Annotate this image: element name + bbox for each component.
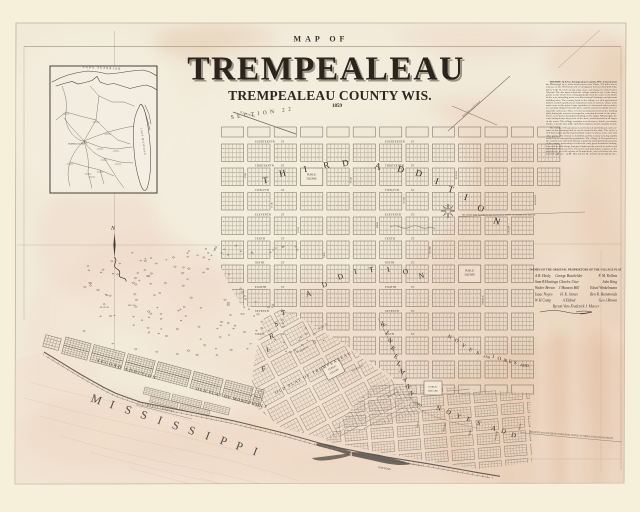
- svg-text:H. K. James: H. K. James: [559, 292, 578, 296]
- svg-text:SQUARE: SQUARE: [428, 390, 438, 393]
- svg-text:ROAD TO THE WARRENS MONTOVILLE: ROAD TO THE WARRENS MONTOVILLE POINT AT …: [462, 214, 536, 217]
- svg-text:ST: ST: [411, 238, 414, 241]
- svg-text:ST: ST: [281, 214, 284, 217]
- svg-text:EIGHTH: EIGHTH: [255, 286, 266, 289]
- svg-text:PINE: PINE: [244, 172, 247, 178]
- svg-text:TWELFTH: TWELFTH: [385, 189, 399, 192]
- svg-text:ST: ST: [281, 141, 284, 144]
- svg-text:LOCUST: LOCUST: [508, 225, 511, 235]
- svg-text:ST: ST: [411, 262, 414, 265]
- svg-text:TREMPEALEAU: TREMPEALEAU: [187, 51, 465, 88]
- svg-text:EIGHTH: EIGHTH: [385, 286, 396, 289]
- svg-text:Ben R. Hammonds: Ben R. Hammonds: [590, 292, 617, 296]
- svg-text:ST: ST: [411, 286, 414, 289]
- svg-text:SEC 30: SEC 30: [128, 304, 136, 307]
- svg-text:TENTH: TENTH: [255, 238, 265, 241]
- svg-text:Isaac Noyes: Isaac Noyes: [534, 292, 553, 296]
- svg-text:SQUARE: SQUARE: [306, 178, 317, 181]
- svg-text:OAK: OAK: [271, 202, 274, 207]
- svg-text:STATE: STATE: [402, 196, 405, 204]
- svg-text:Charles Utter: Charles Utter: [559, 280, 579, 284]
- svg-text:NINTH: NINTH: [255, 262, 265, 265]
- svg-text:ST: ST: [281, 238, 284, 241]
- svg-text:Edwd Winkelmann: Edwd Winkelmann: [589, 286, 617, 290]
- svg-text:SEVENTH: SEVENTH: [255, 310, 269, 313]
- svg-text:shops, a steam saw mill, and o: shops, a steam saw mill, and other impro…: [546, 122, 617, 125]
- svg-text:PLAT 30: PLAT 30: [100, 306, 109, 309]
- svg-text:F. M. Rollins: F. M. Rollins: [597, 274, 617, 278]
- svg-text:FOURTEENTH: FOURTEENTH: [385, 141, 405, 144]
- svg-text:THIRTEENTH: THIRTEENTH: [255, 165, 274, 168]
- svg-text:A Eldred: A Eldred: [562, 298, 576, 302]
- svg-text:PUBLIC: PUBLIC: [465, 270, 474, 273]
- svg-text:TREMPEALEAU: TREMPEALEAU: [68, 143, 84, 146]
- svg-text:ELM: ELM: [297, 227, 300, 233]
- svg-text:WALNUT: WALNUT: [534, 194, 537, 205]
- svg-text:ST: ST: [281, 286, 284, 289]
- svg-text:ST: ST: [281, 189, 284, 192]
- svg-text:NINTH: NINTH: [385, 262, 395, 265]
- svg-text:ELEVENTH: ELEVENTH: [385, 214, 401, 217]
- svg-text:PUBLIC: PUBLIC: [307, 174, 316, 177]
- svg-text:FOURTEENTH: FOURTEENTH: [255, 141, 275, 144]
- svg-text:ST: ST: [411, 333, 414, 336]
- svg-text:HIGH: HIGH: [376, 222, 379, 228]
- svg-text:TENTH: TENTH: [385, 238, 395, 241]
- svg-text:1859: 1859: [332, 104, 343, 109]
- svg-text:TWELFTH: TWELFTH: [255, 189, 269, 192]
- svg-text:George Batchelder: George Batchelder: [555, 274, 583, 278]
- svg-text:ST: ST: [411, 141, 414, 144]
- svg-text:SEVENTH: SEVENTH: [385, 310, 399, 313]
- svg-text:ST: ST: [411, 214, 414, 217]
- svg-text:WATER: WATER: [429, 246, 432, 254]
- svg-text:ST: ST: [411, 165, 414, 168]
- svg-text:J Munson Hill: J Munson Hill: [559, 286, 580, 290]
- svg-text:ST: ST: [411, 189, 414, 192]
- svg-text:Sam B Hastings: Sam B Hastings: [535, 280, 559, 284]
- svg-text:SPRUCE: SPRUCE: [481, 295, 484, 305]
- svg-text:TREMPEALEAU COUNTY WIS.: TREMPEALEAU COUNTY WIS.: [228, 88, 432, 103]
- svg-text:PUBLIC: PUBLIC: [429, 386, 438, 389]
- svg-text:Walter Brown: Walter Brown: [535, 286, 555, 290]
- svg-text:Byram Vars Frederick J. Merc: Byram Vars Frederick J. Mercer: [553, 305, 600, 309]
- svg-text:CEDAR: CEDAR: [455, 171, 458, 180]
- svg-text:ST: ST: [281, 262, 284, 265]
- svg-text:NAMES OF THE ORIGINAL PROPRIET: NAMES OF THE ORIGINAL PROPRIETORS OF THE…: [530, 269, 621, 272]
- svg-text:and give all desired informati: and give all desired information.: [546, 153, 618, 156]
- svg-text:VINE: VINE: [323, 252, 326, 258]
- svg-text:ELEVENTH: ELEVENTH: [255, 214, 271, 217]
- svg-text:Geo I Brown: Geo I Brown: [599, 298, 618, 302]
- svg-text:John King: John King: [602, 280, 617, 284]
- svg-text:W H Camp: W H Camp: [535, 298, 551, 302]
- svg-text:ST: ST: [411, 310, 414, 313]
- svg-text:MAP OF: MAP OF: [294, 35, 349, 44]
- svg-text:A.B. Healy: A.B. Healy: [534, 274, 551, 278]
- svg-text:SQUARE: SQUARE: [465, 274, 476, 277]
- svg-text:MAIN: MAIN: [350, 177, 353, 184]
